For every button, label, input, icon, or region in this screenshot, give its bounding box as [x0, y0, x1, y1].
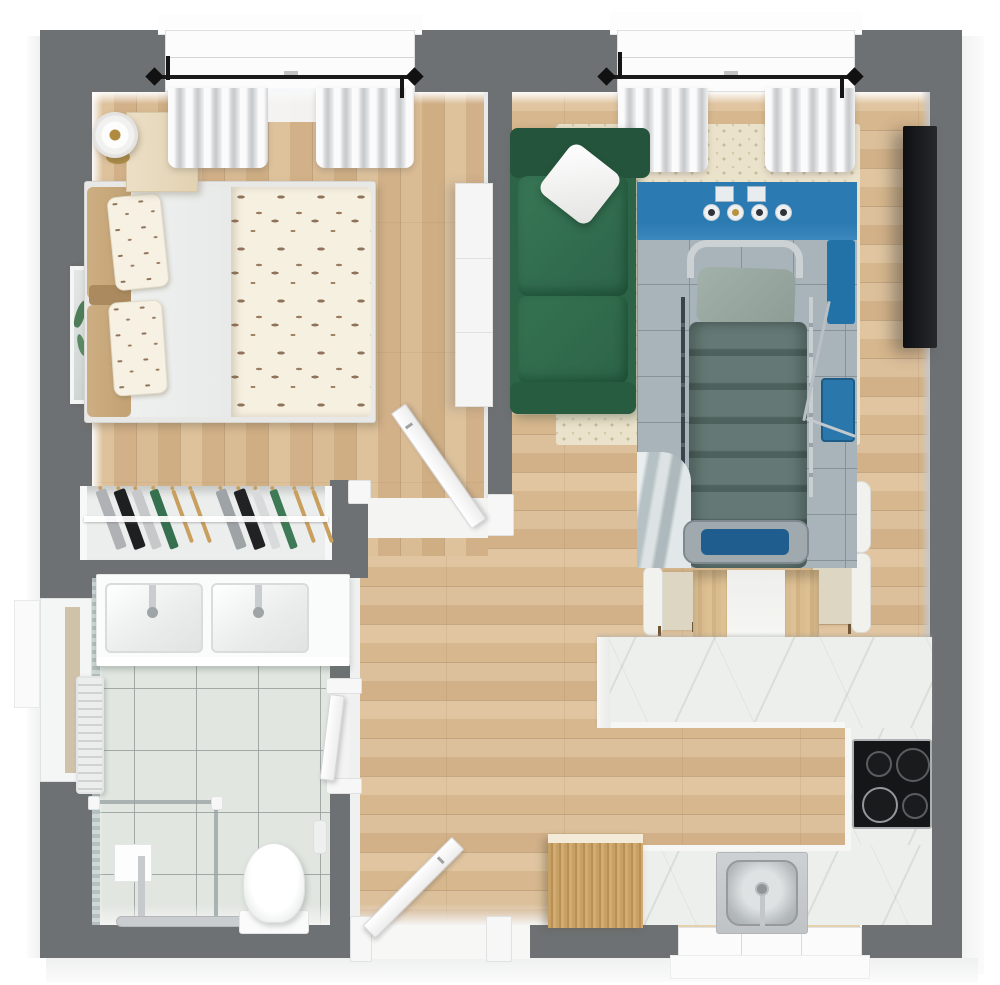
counter-inner-trim	[643, 845, 851, 851]
sink-faucet-stem	[760, 894, 765, 926]
top-wall-mid-segment	[415, 30, 617, 92]
basin-faucet-head	[253, 607, 264, 618]
burner-small-tl	[866, 751, 892, 777]
duvet-bird-pattern	[229, 187, 371, 417]
peninsula-left-face	[597, 637, 610, 728]
overlay-blue-wall-band	[637, 182, 857, 240]
shower-glass-side	[214, 800, 218, 926]
burner-small-br	[902, 793, 928, 819]
radiator	[76, 676, 104, 794]
door-handle	[437, 856, 445, 864]
door-handle	[405, 422, 413, 429]
bottom-wall-right-segment	[862, 925, 962, 958]
cooktop	[852, 739, 932, 829]
kitchen-window-outer-sill	[670, 955, 870, 979]
table-lamp	[92, 112, 138, 158]
bedroom-curtain-rod	[156, 75, 416, 79]
gauge	[751, 204, 768, 221]
vanity-front-ledge	[97, 657, 349, 666]
pillow	[106, 192, 170, 291]
sink-faucet-head	[755, 882, 769, 896]
shower-glass-top	[94, 800, 218, 804]
hospital-bed-pillow	[696, 266, 796, 327]
right-wall-outer-face	[962, 36, 984, 974]
basin-faucet-head	[147, 607, 158, 618]
shower-glass-cap	[211, 796, 223, 810]
sofa-cushion	[518, 296, 628, 384]
bedroom-curtain-left	[168, 88, 268, 168]
entrance-right-jamb	[486, 916, 512, 962]
living-curtain-right	[765, 88, 855, 172]
rod-bracket	[618, 52, 622, 78]
equipment-blue-panel	[827, 240, 855, 324]
window-frame-line	[166, 57, 414, 58]
wall-gauges	[637, 182, 857, 240]
closet-side-panel	[80, 486, 87, 560]
vanity	[96, 574, 350, 666]
gauge	[703, 204, 720, 221]
bed-footboard	[683, 520, 809, 564]
window-frame-line	[618, 57, 854, 58]
dresser	[455, 183, 493, 407]
bathroom-window-outer-sill	[14, 600, 40, 708]
bedroom-sheer-center	[268, 88, 316, 122]
burner-large-tr	[896, 748, 930, 782]
toilet-bowl	[243, 843, 305, 923]
dining-table	[693, 570, 819, 638]
rod-bracket	[166, 56, 170, 80]
sofa-armrest	[510, 382, 636, 414]
counter-inner-trim	[845, 728, 851, 845]
gauge	[727, 204, 744, 221]
closet-rail	[84, 516, 328, 522]
kitchen-peninsula-counter	[597, 637, 932, 728]
table-runner	[727, 570, 785, 638]
shower-plate	[114, 844, 152, 882]
floor-plan	[0, 0, 1000, 985]
living-curtain-rod	[608, 75, 856, 79]
rod-bracket	[400, 76, 404, 98]
chair-leg	[848, 624, 851, 634]
shower-mixer-bar	[116, 916, 252, 927]
burner-large-bl	[862, 787, 898, 823]
bedroom-window	[165, 30, 415, 92]
left-wall-outer-face	[27, 36, 40, 958]
hospital-room-photo-overlay	[637, 182, 857, 568]
bathroom-door-top-jamb	[326, 678, 362, 694]
divider-wall-end-cap	[487, 494, 514, 536]
bedroom-curtain-right	[316, 88, 414, 168]
closet-garments	[87, 488, 325, 558]
pillow	[108, 299, 168, 397]
footboard-blue-pad	[701, 529, 789, 555]
toilet-brush-holder	[313, 820, 327, 854]
rod-bracket	[840, 76, 844, 98]
chair-leg	[658, 626, 661, 636]
tv-wall-mounted	[903, 126, 937, 348]
bathroom-east-wall-lower	[330, 780, 350, 925]
living-window	[617, 30, 855, 92]
bed	[84, 181, 376, 423]
counter-inner-trim	[611, 722, 845, 728]
bathroom-east-wall-face	[350, 578, 360, 925]
drawer-seam	[456, 258, 492, 259]
cabinet-top-edge	[548, 834, 643, 843]
kitchen-wood-cabinet	[548, 838, 643, 928]
gauge	[775, 204, 792, 221]
drawer-seam	[456, 332, 492, 333]
shower-glass-cap	[88, 796, 100, 810]
dining-chair-right-seat	[813, 562, 853, 624]
shower-column	[138, 856, 145, 922]
wardrobe-closet	[80, 486, 332, 560]
